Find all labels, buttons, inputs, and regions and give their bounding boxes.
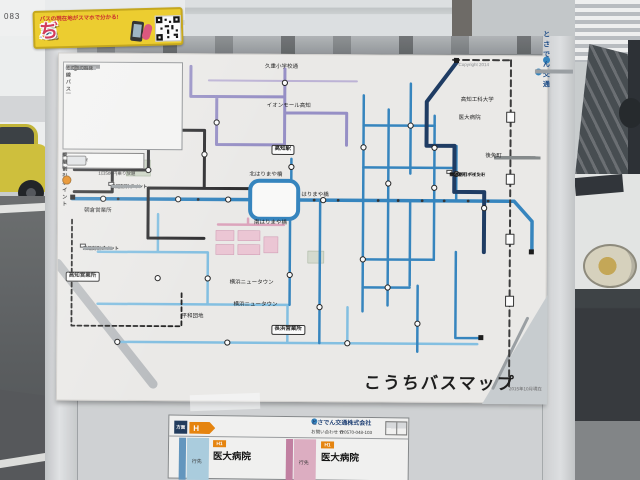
dest-label: 行先 — [192, 458, 202, 465]
panel-operator-text: とさでん交通株式会社 — [311, 417, 371, 427]
truck-bumper — [575, 289, 640, 421]
route-column-stripe-pink — [286, 439, 294, 480]
white-truck — [575, 0, 640, 480]
map-labels: 高知駅北はりまや橋南はりまや橋はりまや橋イオンモール高知久重小学校通高知工科大学… — [57, 54, 547, 403]
background-pillar — [452, 0, 472, 36]
map-label: 高知営業所 — [66, 272, 100, 282]
map-date-note: 2015年10月現在 — [509, 386, 542, 392]
phone-label: お問い合わせ — [311, 429, 338, 434]
qr-code-icon — [155, 15, 182, 42]
map-label: 横浜ニュータウン — [234, 303, 278, 309]
map-label: 朝倉営業所 — [84, 209, 112, 215]
map-label: 横浜ニュータウン — [230, 281, 274, 287]
phone-number: 0570-048-103 — [344, 430, 372, 435]
dest-label: 行先 — [299, 459, 309, 466]
map-label: 北はりまや橋 — [249, 173, 282, 179]
road-marking — [0, 203, 48, 214]
bus-map-poster: 路線バス 空港連絡バス MY遊バス その他の路線 200円 — [56, 53, 548, 404]
route-column-stripe-blue — [179, 438, 187, 480]
transfer-callout: 乗継割引ポイント — [108, 182, 114, 186]
destination-name: 医大病院 — [213, 448, 251, 462]
road-surface — [575, 421, 640, 480]
map-label: 南はりまや橋 — [254, 221, 287, 227]
route-number-badge: H1 — [213, 440, 226, 447]
map-label: 高知駅 — [271, 145, 294, 155]
bus-kocchi-sticker: バスの現在地がスマホで分かる! バスこっち — [33, 7, 184, 49]
map-label: イオンモール高知 — [267, 104, 311, 110]
copyright-text: Copyright 2014 — [458, 62, 489, 67]
route-number-badge: H1 — [321, 441, 334, 448]
destination-name: 医大病院 — [321, 449, 359, 463]
wall-sign-text: 083 — [4, 12, 20, 21]
operator-logo2-bar — [535, 69, 573, 73]
map-label: 医大病院 — [459, 116, 481, 122]
map-label: 久重小学校通 — [265, 65, 298, 71]
timetable-panel: 方面 H とさでん交通株式会社 お問い合わせ ☎0570-048-103 行先 … — [168, 415, 410, 480]
callout-detail: 後免西町〜後免町 — [449, 172, 485, 178]
map-label: 平和団地 — [181, 314, 203, 320]
board-scuff — [190, 393, 261, 411]
map-label: 高知工科大学 — [461, 98, 494, 104]
smartphone-screen — [132, 24, 141, 38]
sticker-title-char: ち — [39, 21, 59, 44]
route-letter-badge: H — [189, 422, 215, 434]
truck-headlight — [583, 244, 637, 288]
callout-text-bar — [83, 247, 113, 250]
panel-phone: お問い合わせ ☎0570-048-103 — [311, 429, 372, 436]
operator-logo-text: とさでん交通 — [543, 29, 550, 89]
panel-mini-table — [385, 421, 407, 435]
transfer-callout: 乗継割引ポイント — [80, 244, 86, 248]
direction-badge: 方面 — [174, 421, 187, 434]
transfer-callout: 乗継割引ポイント後免西町〜後免町 — [446, 170, 452, 174]
map-title: こうちバスマップ — [363, 368, 516, 394]
callout-text-bar — [111, 185, 141, 188]
map-label: 長浜営業所 — [271, 325, 305, 335]
background-wall-right — [472, 0, 575, 36]
map-label: はりまや橋 — [301, 193, 329, 199]
bus-stop-photo: 083 — [0, 0, 640, 480]
map-label: 後免町 — [485, 154, 502, 160]
truck-mirror — [619, 98, 640, 128]
background-beam — [185, 0, 452, 36]
